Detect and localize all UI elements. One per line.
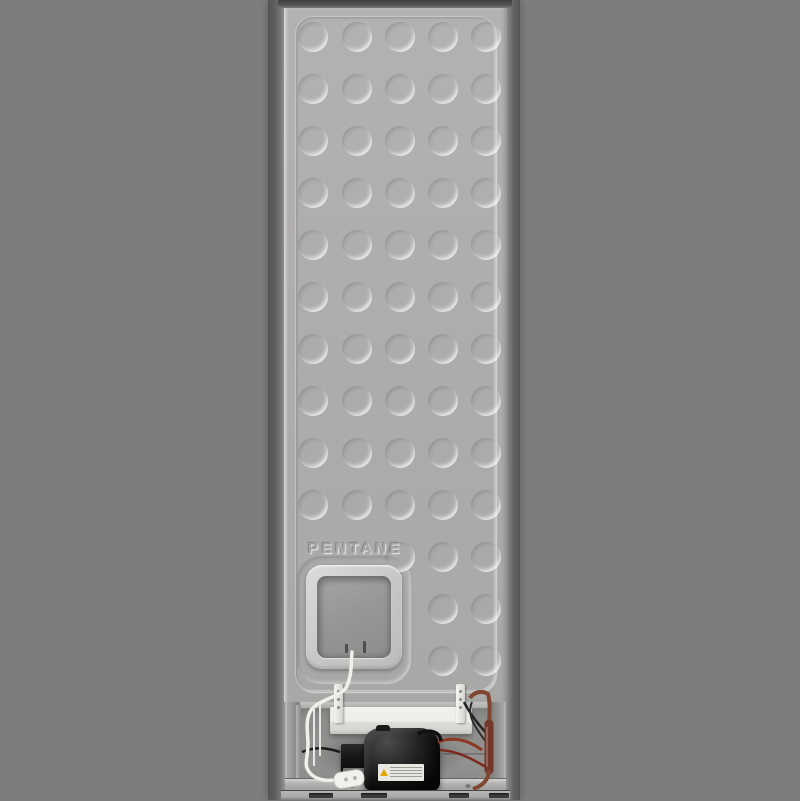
refrigerator-back: PENTANE [268,0,520,800]
embossed-dimple [298,490,328,520]
tray-bracket-left [334,684,343,723]
embossed-dimple [428,490,458,520]
embossed-dimple [298,74,328,104]
embossed-dimple [298,334,328,364]
embossed-dimple [428,594,458,624]
bracket-hole [459,690,462,693]
embossed-dimple [385,22,415,52]
embossed-dimple [298,438,328,468]
relay-label [343,768,366,773]
fridge-left-edge [268,0,285,800]
vent-slot [361,793,387,798]
photo-stage: PENTANE [0,0,800,800]
embossed-dimple [342,386,372,416]
embossed-dimple [471,594,501,624]
embossed-dimple [385,334,415,364]
embossed-dimple [342,22,372,52]
embossed-dimple [385,178,415,208]
embossed-dimple [428,646,458,676]
fridge-right-edge [506,0,520,800]
embossed-dimple [428,22,458,52]
embossed-dimple [471,126,501,156]
embossed-dimple [428,334,458,364]
embossed-dimple [428,542,458,572]
embossed-dimple [428,282,458,312]
embossed-dimple [342,126,372,156]
compressor-fitting [376,725,390,731]
embossed-dimple [342,438,372,468]
embossed-dimple [471,22,501,52]
embossed-dimple [471,74,501,104]
back-panel: PENTANE [284,5,507,702]
embossed-dimple [428,74,458,104]
scene: { "scene": { "type": "product-photo", "s… [0,0,800,800]
embossed-dimple [471,438,501,468]
compressor-label [378,764,424,781]
embossed-dimple [385,386,415,416]
embossed-dimple [298,126,328,156]
base-rail [281,790,510,801]
bracket-hole [459,706,462,709]
cover-clip [363,641,366,653]
embossed-dimple [385,74,415,104]
embossed-dimple [342,490,372,520]
embossed-dimple [298,386,328,416]
embossed-dimple [428,386,458,416]
embossed-dimple [471,490,501,520]
embossed-dimple [342,282,372,312]
embossed-dimple [298,230,328,260]
pentane-marking: PENTANE [308,540,403,557]
access-panel-cover [317,576,391,658]
embossed-dimple [385,438,415,468]
warning-triangle-icon [380,769,388,776]
embossed-dimple [471,386,501,416]
embossed-dimple [342,74,372,104]
embossed-dimple [471,646,501,676]
tray-bracket-right [456,684,465,723]
embossed-dimple [428,230,458,260]
embossed-dimple [428,178,458,208]
vent-slot [309,793,333,798]
label-fine-print [390,767,422,778]
embossed-dimple [471,178,501,208]
embossed-dimple [428,126,458,156]
embossed-dimple [342,230,372,260]
fridge-top-edge [278,0,512,8]
embossed-dimple [385,230,415,260]
embossed-dimple [298,282,328,312]
embossed-dimple [385,126,415,156]
compressor-compartment [285,702,506,800]
embossed-dimple [342,334,372,364]
embossed-dimple [428,438,458,468]
vent-slot [449,793,469,798]
vent-slot [489,793,509,798]
cover-clip [345,644,348,653]
embossed-dimple [342,178,372,208]
embossed-dimple [471,230,501,260]
embossed-dimple [298,178,328,208]
bolt [465,783,471,788]
evaporator-access-panel [306,565,402,669]
embossed-dimple [471,334,501,364]
embossed-dimple [298,22,328,52]
embossed-dimple [471,282,501,312]
bracket-hole [459,698,462,701]
bracket-hole [337,698,340,701]
compressor [364,728,440,791]
bracket-hole [337,690,340,693]
embossed-dimple [385,490,415,520]
bolt [349,783,355,788]
bracket-hole [337,706,340,709]
embossed-dimple [471,542,501,572]
embossed-dimple [385,282,415,312]
